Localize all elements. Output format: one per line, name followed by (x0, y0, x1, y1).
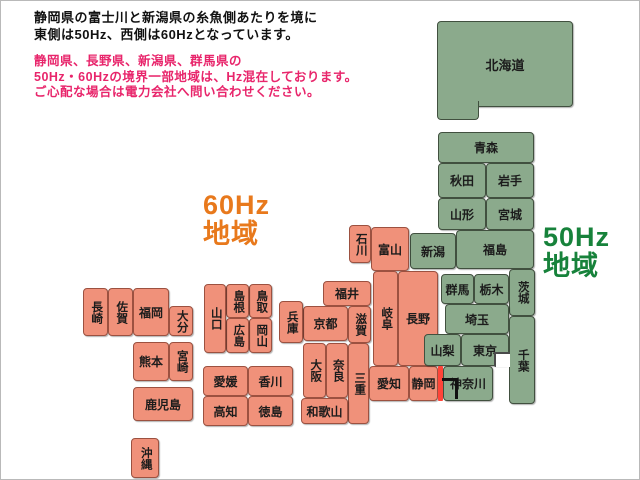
prefecture-hyogo: 兵庫 (279, 301, 303, 343)
prefecture-oita: 大分 (169, 306, 193, 336)
prefecture-osaka: 大阪 (303, 343, 326, 398)
prefecture-label-miyazaki: 宮崎 (175, 350, 187, 373)
prefecture-fukushima: 福島 (456, 230, 534, 269)
prefecture-label-niigata: 新潟 (421, 243, 445, 260)
prefecture-label-mie: 三重 (353, 372, 365, 395)
prefecture-tochigi: 栃木 (474, 274, 509, 304)
prefecture-label-ehime: 愛媛 (213, 373, 237, 390)
prefecture-label-tochigi: 栃木 (479, 281, 503, 298)
fujikawa-boundary-line (442, 378, 458, 399)
prefecture-yamagata: 山形 (438, 198, 486, 230)
prefecture-label-kumamoto: 熊本 (139, 353, 163, 370)
prefecture-akita: 秋田 (438, 163, 486, 198)
prefecture-label-osaka: 大阪 (309, 359, 321, 382)
prefecture-label-nara: 奈良 (331, 359, 343, 382)
prefecture-miyazaki: 宮崎 (169, 342, 193, 381)
prefecture-label-kagoshima: 鹿児島 (145, 396, 181, 413)
prefecture-label-hiroshima: 広島 (232, 324, 244, 347)
prefecture-ehime: 愛媛 (203, 366, 248, 396)
prefecture-label-kyoto: 京都 (313, 315, 337, 332)
prefecture-toyama: 富山 (371, 227, 409, 271)
prefecture-ibaraki: 茨城 (509, 269, 535, 316)
prefecture-tokushima: 徳島 (248, 396, 293, 426)
prefecture-gifu: 岐阜 (373, 271, 398, 366)
prefecture-label-saga: 佐賀 (115, 301, 127, 324)
prefecture-label-shizuoka: 静岡 (411, 375, 435, 392)
mixed-frequency-notice-line2: 50Hz・60Hzの境界一部地域は、Hz混在しております。 (34, 70, 358, 86)
prefecture-label-nagasaki: 長崎 (90, 301, 102, 324)
tokyo-bay-notch (494, 352, 510, 367)
prefecture-label-shimane: 島根 (232, 290, 244, 313)
prefecture-label-akita: 秋田 (450, 172, 474, 189)
legend-60hz-area-label: 地域 (203, 220, 270, 249)
prefecture-hokkaido-leg (437, 101, 479, 120)
prefecture-label-aichi: 愛知 (377, 375, 401, 392)
prefecture-okayama: 岡山 (249, 318, 272, 353)
prefecture-label-yamagata: 山形 (450, 206, 474, 223)
prefecture-label-kochi: 高知 (213, 403, 237, 420)
prefecture-fukuoka: 福岡 (133, 288, 169, 336)
prefecture-label-gunma: 群馬 (445, 281, 469, 298)
prefecture-shizuoka: 静岡 (409, 366, 438, 401)
prefecture-label-ibaraki: 茨城 (516, 281, 528, 304)
prefecture-label-tottori: 鳥取 (255, 290, 267, 313)
mixed-frequency-notice-line3: ご心配な場合は電力会社へ問い合わせください。 (34, 85, 358, 101)
prefecture-yamanashi: 山梨 (424, 334, 461, 366)
prefecture-label-tokushima: 徳島 (258, 403, 282, 420)
prefecture-hiroshima: 広島 (226, 318, 249, 353)
prefecture-ishikawa: 石川 (349, 225, 371, 263)
prefecture-fukui: 福井 (323, 281, 371, 306)
prefecture-label-shiga: 滋賀 (354, 313, 366, 336)
prefecture-label-nagano: 長野 (406, 310, 430, 327)
prefecture-label-toyama: 富山 (378, 241, 402, 258)
prefecture-gunma: 群馬 (441, 274, 474, 304)
boundary-description-line1: 静岡県の富士川と新潟県の糸魚側あたりを境に (34, 9, 318, 26)
prefecture-okinawa: 沖縄 (131, 438, 159, 478)
prefecture-yamaguchi: 山口 (204, 284, 226, 353)
prefecture-saga: 佐賀 (108, 288, 133, 336)
prefecture-label-okayama: 岡山 (255, 324, 267, 347)
prefecture-niigata: 新潟 (410, 233, 456, 269)
prefecture-label-fukushima: 福島 (483, 241, 507, 258)
prefecture-nara: 奈良 (326, 343, 348, 398)
mixed-frequency-notice: 静岡県、長野県、新潟県、群馬県の 50Hz・60Hzの境界一部地域は、Hz混在し… (34, 54, 358, 101)
prefecture-kagawa: 香川 (248, 366, 293, 396)
prefecture-kyoto: 京都 (303, 306, 348, 341)
prefecture-miyagi: 宮城 (486, 198, 534, 230)
prefecture-nagasaki: 長崎 (83, 288, 108, 336)
prefecture-label-iwate: 岩手 (498, 172, 522, 189)
prefecture-shimane: 島根 (226, 284, 249, 318)
legend-60hz-label: 60Hz (203, 191, 270, 220)
legend-50hz-area: 50Hz 地域 (543, 223, 610, 281)
prefecture-label-kagawa: 香川 (258, 373, 282, 390)
prefecture-label-chiba: 千葉 (516, 349, 528, 372)
prefecture-saitama: 埼玉 (445, 304, 509, 334)
prefecture-label-oita: 大分 (175, 310, 187, 333)
prefecture-label-okinawa: 沖縄 (139, 447, 151, 470)
prefecture-label-yamanashi: 山梨 (430, 342, 454, 359)
mixed-frequency-notice-line1: 静岡県、長野県、新潟県、群馬県の (34, 54, 358, 70)
prefecture-aichi: 愛知 (369, 366, 409, 401)
prefecture-label-miyagi: 宮城 (498, 206, 522, 223)
prefecture-iwate: 岩手 (486, 163, 534, 198)
prefecture-mie: 三重 (348, 343, 369, 424)
prefecture-label-hyogo: 兵庫 (285, 311, 297, 334)
prefecture-hokkaido: 北海道 (437, 21, 573, 107)
prefecture-kumamoto: 熊本 (133, 342, 169, 381)
legend-60hz-area: 60Hz 地域 (203, 191, 270, 249)
boundary-description-line2: 東側は50Hz、西側は60Hzとなっています。 (34, 26, 318, 43)
prefecture-label-ishikawa: 石川 (354, 233, 366, 256)
frequency-map-page: 静岡県の富士川と新潟県の糸魚側あたりを境に 東側は50Hz、西側は60Hzとなっ… (0, 0, 640, 480)
prefecture-label-yamaguchi: 山口 (209, 307, 221, 330)
prefecture-aomori: 青森 (438, 132, 534, 163)
legend-50hz-label: 50Hz (543, 223, 610, 252)
prefecture-label-gifu: 岐阜 (380, 307, 392, 330)
prefecture-chiba: 千葉 (509, 316, 535, 404)
prefecture-kagoshima: 鹿児島 (133, 387, 193, 421)
prefecture-label-fukuoka: 福岡 (139, 304, 163, 321)
prefecture-label-fukui: 福井 (335, 285, 359, 302)
legend-50hz-area-label: 地域 (543, 252, 610, 281)
prefecture-label-aomori: 青森 (474, 139, 498, 156)
prefecture-kochi: 高知 (203, 396, 248, 426)
prefecture-label-saitama: 埼玉 (465, 311, 489, 328)
prefecture-shiga: 滋賀 (348, 306, 371, 343)
prefecture-tottori: 鳥取 (249, 284, 272, 318)
prefecture-wakayama: 和歌山 (301, 398, 348, 424)
prefecture-label-hokkaido: 北海道 (485, 55, 524, 74)
prefecture-label-wakayama: 和歌山 (306, 403, 342, 420)
boundary-description: 静岡県の富士川と新潟県の糸魚側あたりを境に 東側は50Hz、西側は60Hzとなっ… (34, 9, 318, 43)
